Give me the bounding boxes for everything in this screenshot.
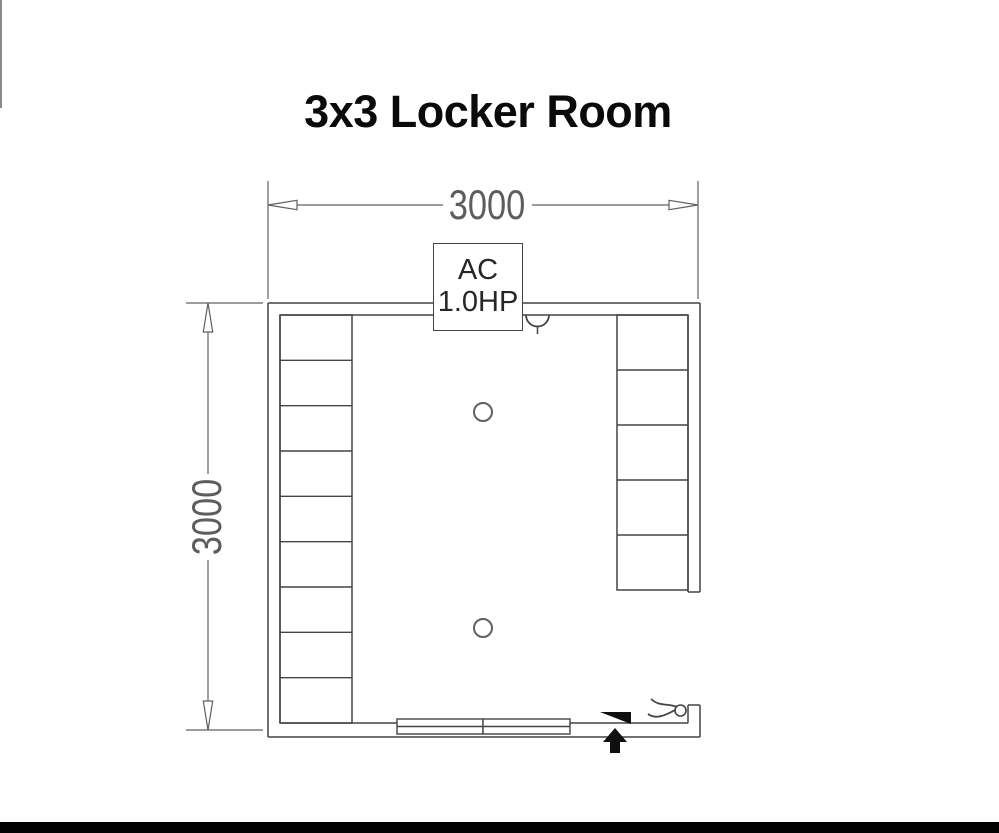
- entry-arrow-icon: [603, 728, 627, 753]
- dimension-arrow-left-icon: [268, 200, 297, 209]
- door-hardware: [648, 699, 686, 717]
- right-locker-bank: [617, 315, 688, 590]
- left-locker-bank-outline: [280, 315, 352, 723]
- sliding-door-panels: [397, 719, 570, 734]
- page-title: 3x3 Locker Room: [238, 86, 738, 138]
- walls: [268, 303, 700, 737]
- ac-unit-label-line1: AC: [458, 255, 498, 287]
- door-hardware-curve: [651, 699, 677, 707]
- bottom-black-bar: [0, 822, 999, 833]
- dimension-arrow-up-icon: [203, 303, 212, 332]
- entrance-markers: [600, 712, 631, 753]
- left-locker-bank-dividers: [280, 360, 352, 677]
- dimension-arrow-down-icon: [203, 701, 212, 730]
- dimension-width-label: 3000: [445, 184, 530, 226]
- door-swing-triangle-icon: [600, 712, 631, 724]
- door-hardware-knob-icon: [675, 705, 686, 716]
- left-locker-bank: [280, 315, 352, 723]
- floorplan-canvas: 3x3 Locker Room 3000 3000 AC 1.0HP: [0, 0, 999, 833]
- ceiling-lights: [474, 403, 492, 637]
- dimension-arrow-right-icon: [669, 200, 698, 209]
- ceiling-light-icon: [474, 403, 492, 421]
- ceiling-light-icon: [474, 619, 492, 637]
- wall-fixture: [526, 315, 549, 334]
- fixture-arc-icon: [526, 315, 549, 327]
- ac-unit-box: AC 1.0HP: [433, 243, 523, 331]
- ac-unit-label-line2: 1.0HP: [438, 287, 519, 319]
- right-locker-bank-dividers: [617, 370, 688, 535]
- screen-edge-artifact: [0, 0, 2, 108]
- right-locker-bank-outline: [617, 315, 688, 590]
- door-hardware-curve: [648, 710, 675, 717]
- dimension-height-label: 3000: [186, 475, 228, 560]
